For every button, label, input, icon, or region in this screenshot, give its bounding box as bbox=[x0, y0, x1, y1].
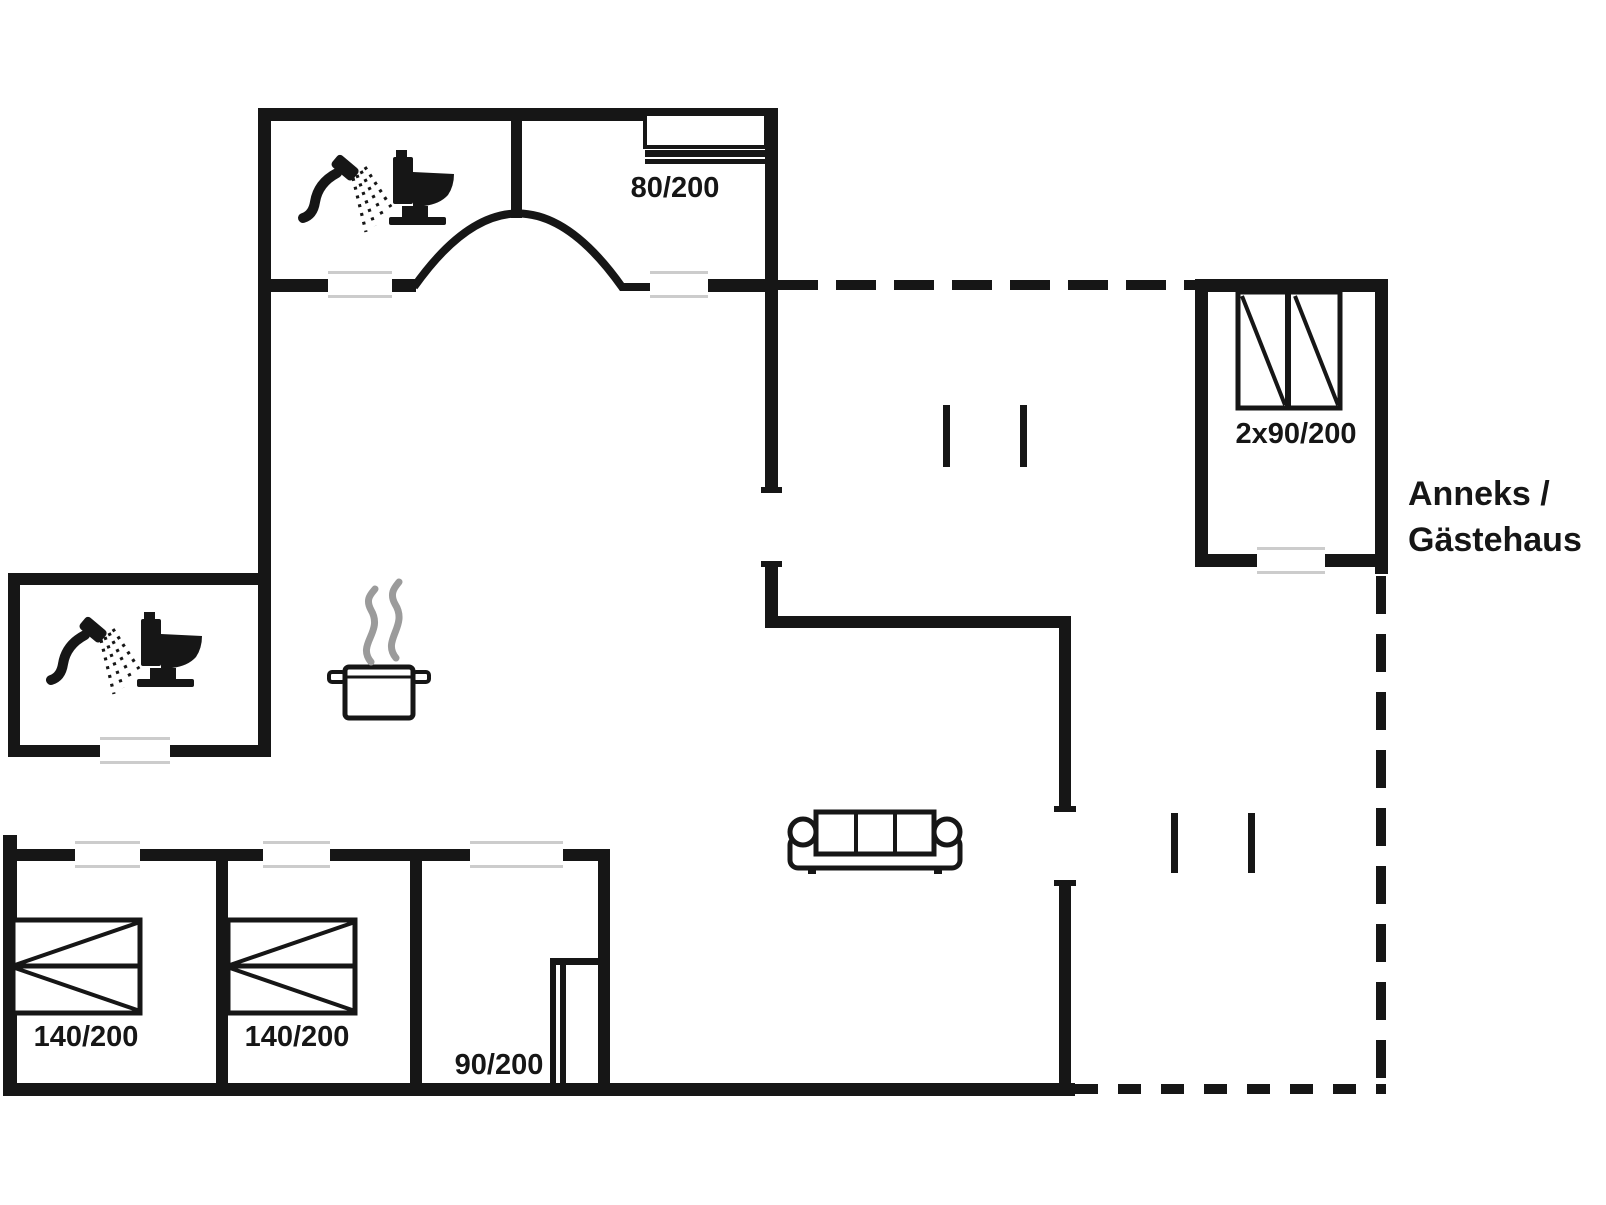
floor-plan-page: 80/200 2x90/200 Anneks / Gästehaus 140/2… bbox=[0, 0, 1606, 1205]
background bbox=[0, 0, 1606, 1205]
wall-living-right-lower bbox=[1059, 882, 1071, 1096]
wall-bedrooms-top-c bbox=[228, 849, 263, 861]
door-bedroom1 bbox=[75, 842, 140, 868]
label-bed-room1: 140/200 bbox=[34, 1021, 139, 1053]
door-post-marker bbox=[1248, 813, 1255, 873]
wall-living-right-upper bbox=[1059, 616, 1071, 812]
door-annex bbox=[1257, 548, 1325, 574]
bed-edge bbox=[560, 958, 566, 1083]
wall-midbath-bottom-a bbox=[8, 745, 100, 757]
door-top-bedroom bbox=[650, 272, 708, 299]
wall-midbath-top bbox=[8, 573, 270, 585]
door-line bbox=[263, 841, 330, 844]
wall-end-cap bbox=[1054, 806, 1076, 812]
bed-outline bbox=[645, 114, 766, 147]
bed-edge bbox=[550, 958, 598, 965]
wall-bedrooms-top-e bbox=[422, 849, 470, 861]
wall-bottom-outer bbox=[3, 1083, 1075, 1096]
door-line bbox=[650, 271, 708, 274]
label-annex-name-line2: Gästehaus bbox=[1408, 521, 1582, 559]
sofa-armrest bbox=[934, 819, 960, 845]
wall-bath-bedroom-divider bbox=[511, 112, 522, 218]
label-bed-annex: 2x90/200 bbox=[1236, 418, 1357, 450]
door-mid-bathroom bbox=[100, 738, 170, 764]
label-bed-top-bedroom: 80/200 bbox=[631, 172, 720, 204]
wall-bedroom-divider-2 bbox=[410, 849, 422, 1083]
label-bed-room3: 90/200 bbox=[455, 1049, 544, 1081]
wall-end-cap bbox=[761, 561, 782, 567]
door-line bbox=[100, 737, 170, 740]
wall-annex-bottom-b bbox=[1325, 554, 1388, 567]
door-line bbox=[1257, 571, 1325, 574]
door-line bbox=[75, 841, 140, 844]
door-line bbox=[328, 271, 392, 274]
door-post-marker bbox=[943, 405, 950, 467]
wall-annex-bottom-a bbox=[1195, 554, 1257, 567]
door-line bbox=[328, 295, 392, 298]
door-bedroom2 bbox=[263, 842, 330, 868]
sofa-armrest bbox=[790, 819, 816, 845]
wall-bedroom3-right bbox=[598, 849, 610, 1083]
wall-living-top bbox=[765, 616, 1071, 628]
label-bed-room2: 140/200 bbox=[245, 1021, 350, 1053]
wall-top-block-bottom-c bbox=[708, 279, 778, 292]
sofa-backrest bbox=[816, 812, 934, 854]
door-line bbox=[650, 295, 708, 298]
wall-hall-right-upper bbox=[765, 108, 778, 493]
cooking-pot-icon bbox=[329, 667, 429, 718]
door-post-marker bbox=[1020, 405, 1027, 467]
wall-bedrooms-top-b bbox=[140, 849, 228, 861]
wall-annex-right bbox=[1375, 279, 1388, 574]
door-bedroom3 bbox=[470, 842, 563, 868]
bed-headboard bbox=[645, 150, 766, 157]
door-post-marker bbox=[1171, 813, 1178, 873]
wall-end-cap bbox=[1054, 880, 1076, 886]
bed-annex bbox=[1238, 292, 1340, 408]
wall-end-cap bbox=[761, 487, 782, 493]
bed-edge bbox=[550, 958, 556, 1083]
bed-room2 bbox=[228, 920, 355, 1013]
door-line bbox=[470, 865, 563, 868]
floor-plan: 80/200 2x90/200 Anneks / Gästehaus 140/2… bbox=[0, 0, 1606, 1205]
wall-bedrooms-top-a bbox=[8, 849, 75, 861]
wall-midbath-left bbox=[8, 573, 20, 757]
label-annex-name-line1: Anneks / bbox=[1408, 475, 1550, 513]
door-top-bathroom bbox=[328, 272, 392, 299]
wall-annex-left bbox=[1195, 279, 1208, 567]
wall-midbath-bottom-b bbox=[170, 745, 270, 757]
door-line bbox=[100, 761, 170, 764]
bed-room1 bbox=[13, 920, 140, 1013]
sofa-icon bbox=[790, 812, 960, 874]
bed-top-bedroom bbox=[645, 114, 766, 164]
wall-top-block-bottom-a bbox=[258, 279, 328, 292]
bed-headboard bbox=[645, 159, 766, 164]
door-line bbox=[263, 865, 330, 868]
door-line bbox=[75, 865, 140, 868]
wall-main-left bbox=[258, 108, 271, 757]
door-line bbox=[1257, 547, 1325, 550]
pot-body bbox=[345, 667, 413, 718]
door-line bbox=[470, 841, 563, 844]
wall-bedrooms-top-d bbox=[330, 849, 422, 861]
